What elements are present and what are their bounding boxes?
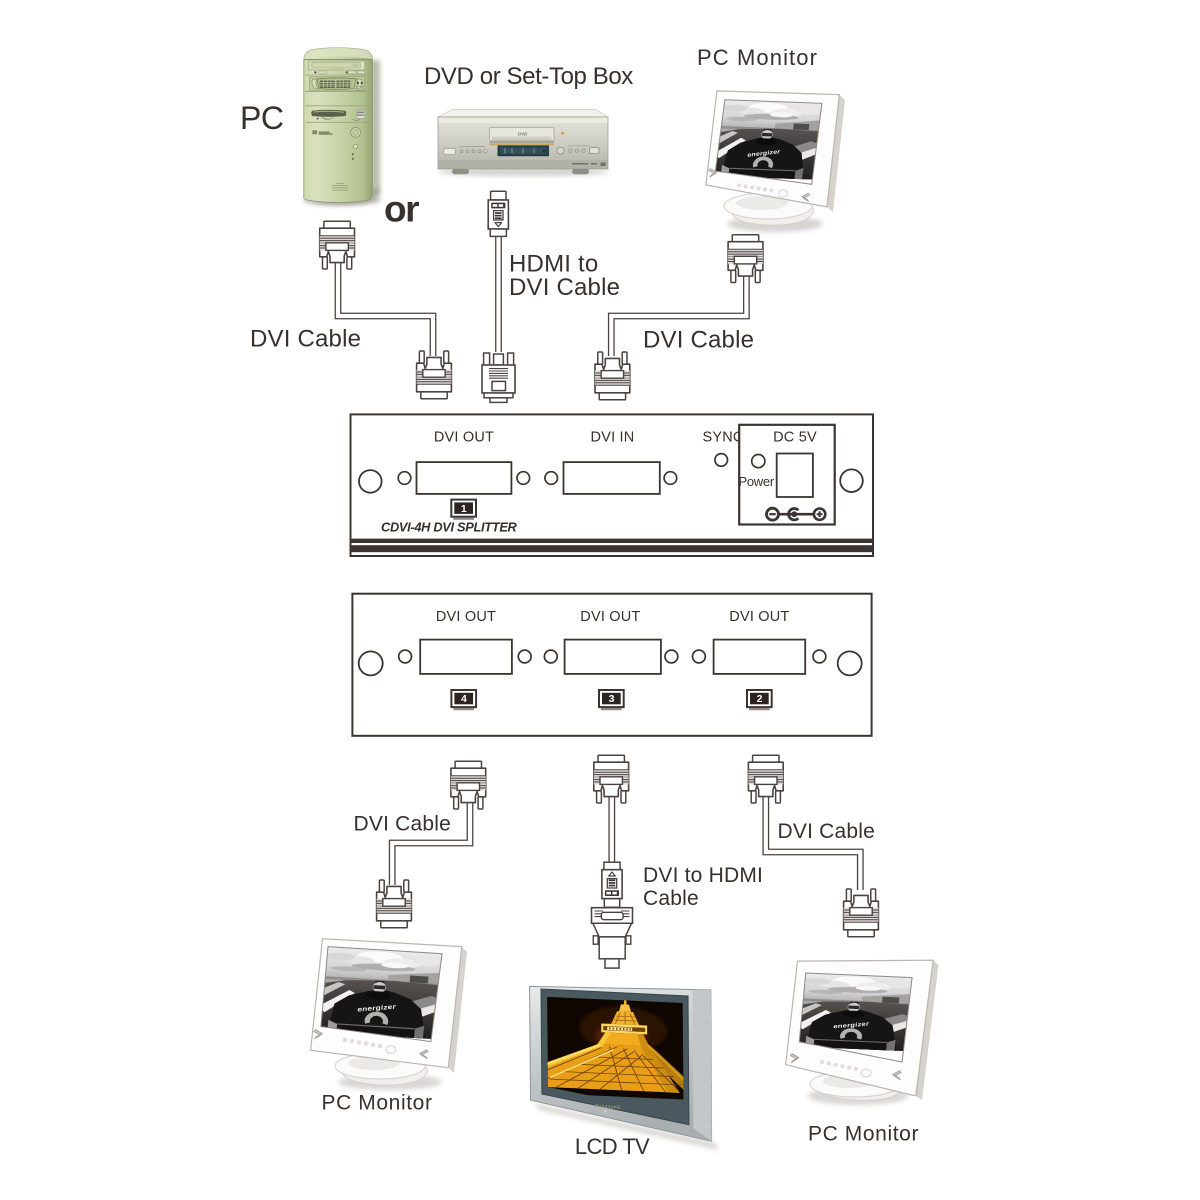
svg-text:DVI to HDMI: DVI to HDMI [643,864,763,887]
svg-text:DC 5V: DC 5V [773,429,817,445]
svg-text:DVI Cable: DVI Cable [778,820,876,843]
svg-text:PC Monitor: PC Monitor [322,1092,433,1115]
svg-text:Power: Power [739,474,775,489]
svg-text:DVI OUT: DVI OUT [729,609,789,625]
svg-text:DVI Cable: DVI Cable [354,813,452,836]
svg-text:LCD TV: LCD TV [575,1134,650,1159]
svg-text:PC: PC [240,100,283,136]
svg-text:PC Monitor: PC Monitor [808,1123,919,1146]
svg-text:DVI OUT: DVI OUT [436,609,496,625]
svg-text:SYNC: SYNC [702,429,743,445]
svg-text:3: 3 [609,693,615,705]
svg-text:DVI IN: DVI IN [591,429,635,445]
svg-text:DVD: DVD [518,132,528,137]
svg-text:PC Monitor: PC Monitor [697,45,818,70]
svg-text:DVI OUT: DVI OUT [434,429,494,445]
svg-text:DVI OUT: DVI OUT [580,609,640,625]
svg-text:or: or [384,189,419,230]
svg-text:1: 1 [461,503,467,515]
svg-text:DVI Cable: DVI Cable [643,327,754,354]
svg-text:DVD or Set-Top Box: DVD or Set-Top Box [424,63,633,90]
svg-text:DVI Cable: DVI Cable [509,274,620,301]
svg-text:Cable: Cable [643,887,699,910]
svg-text:2: 2 [757,693,763,705]
svg-text:CDVI-4H DVI SPLITTER: CDVI-4H DVI SPLITTER [381,520,518,535]
svg-text:4: 4 [461,693,467,705]
svg-text:DVI Cable: DVI Cable [250,326,361,353]
